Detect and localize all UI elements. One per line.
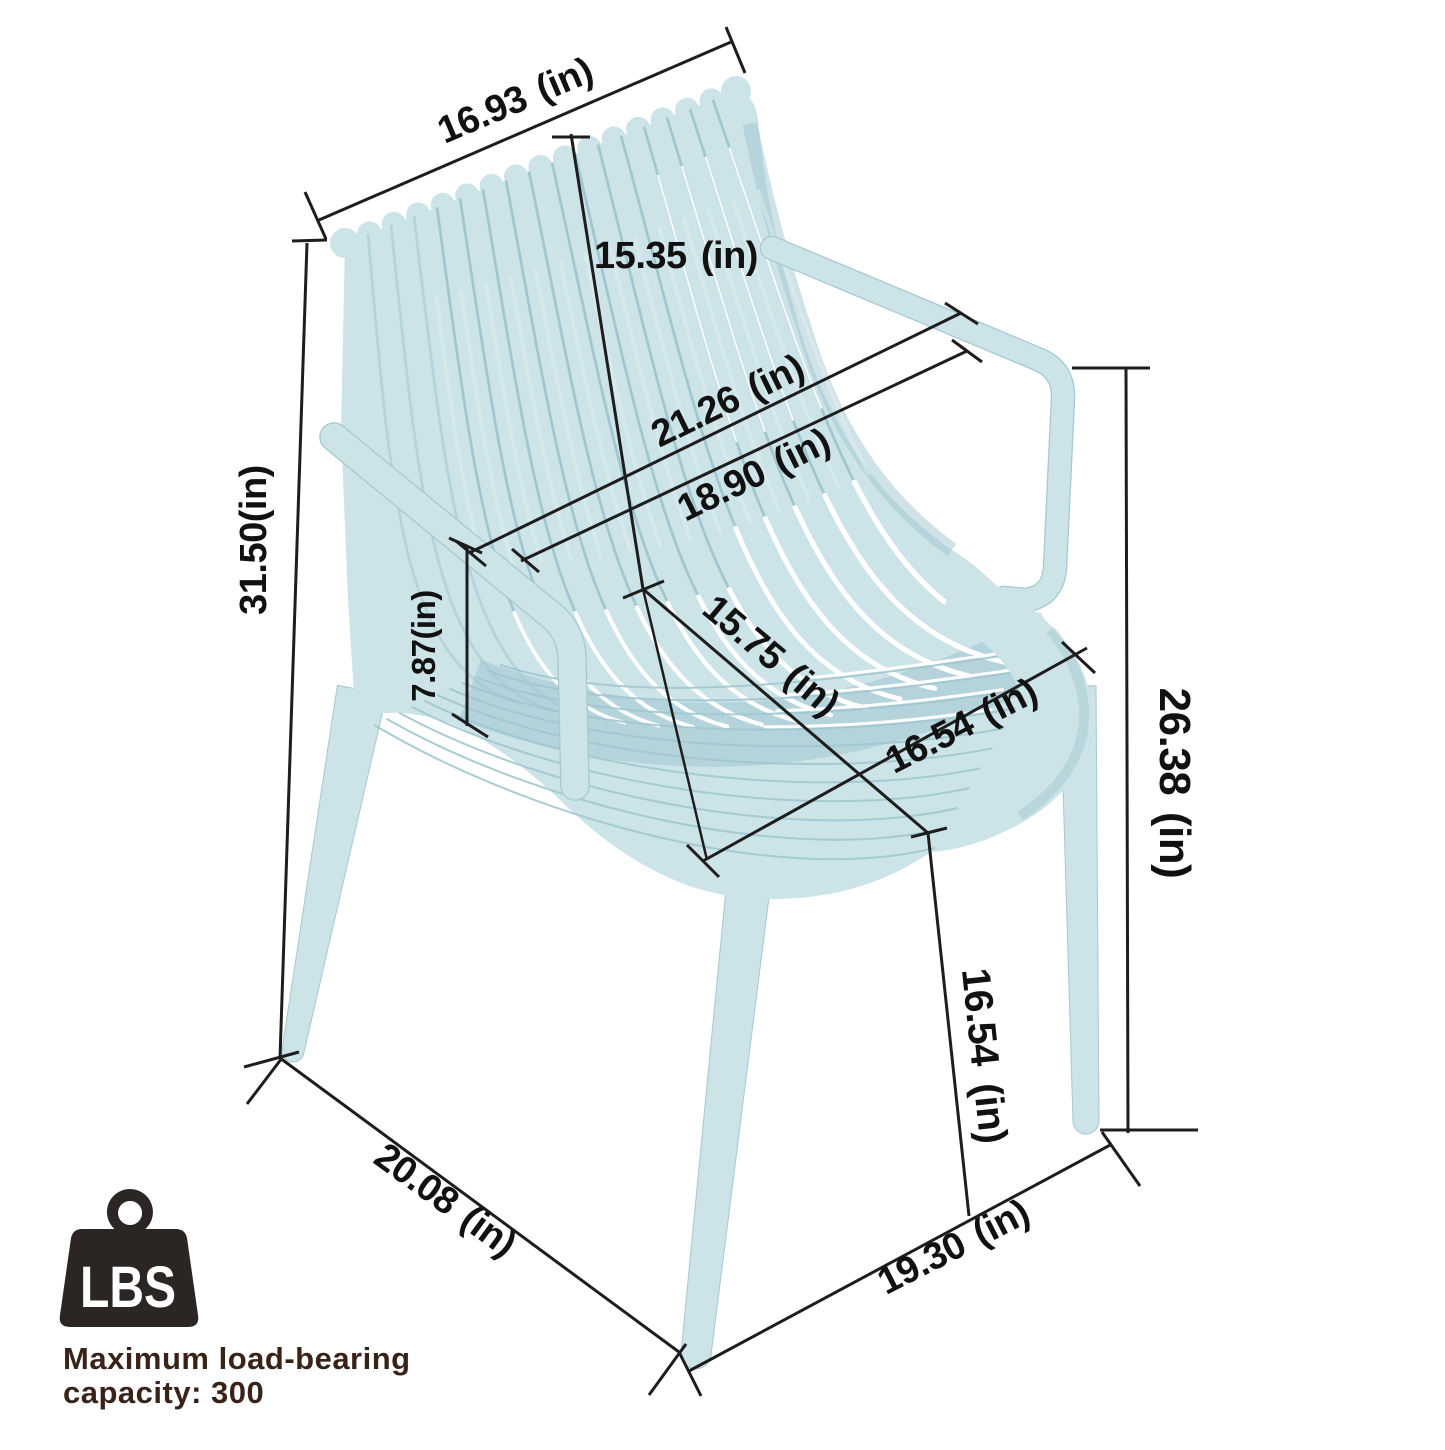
svg-text:15.35 (in): 15.35 (in) <box>594 235 758 277</box>
svg-text:LBS: LBS <box>80 1255 176 1320</box>
svg-text:7.87(in): 7.87(in) <box>405 590 442 702</box>
svg-text:31.50(in): 31.50(in) <box>233 465 275 615</box>
svg-text:26.38 (in): 26.38 (in) <box>1150 688 1199 879</box>
svg-text:capacity: 300: capacity: 300 <box>63 1375 264 1410</box>
svg-text:Maximum load-bearing: Maximum load-bearing <box>63 1341 411 1376</box>
